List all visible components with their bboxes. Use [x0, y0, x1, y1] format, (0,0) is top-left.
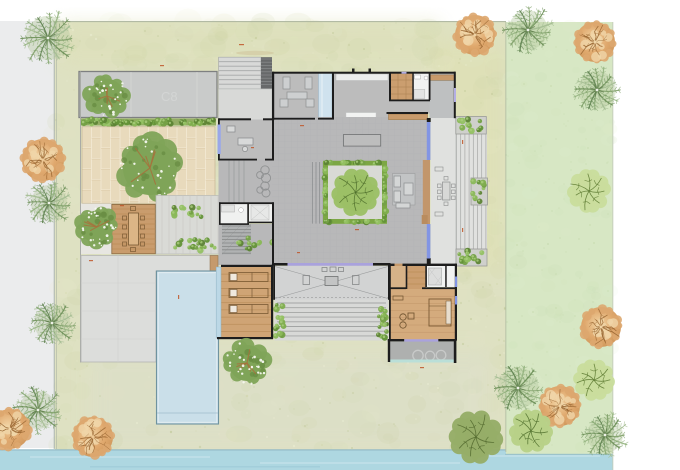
- svg-text:C8: C8: [161, 89, 178, 104]
